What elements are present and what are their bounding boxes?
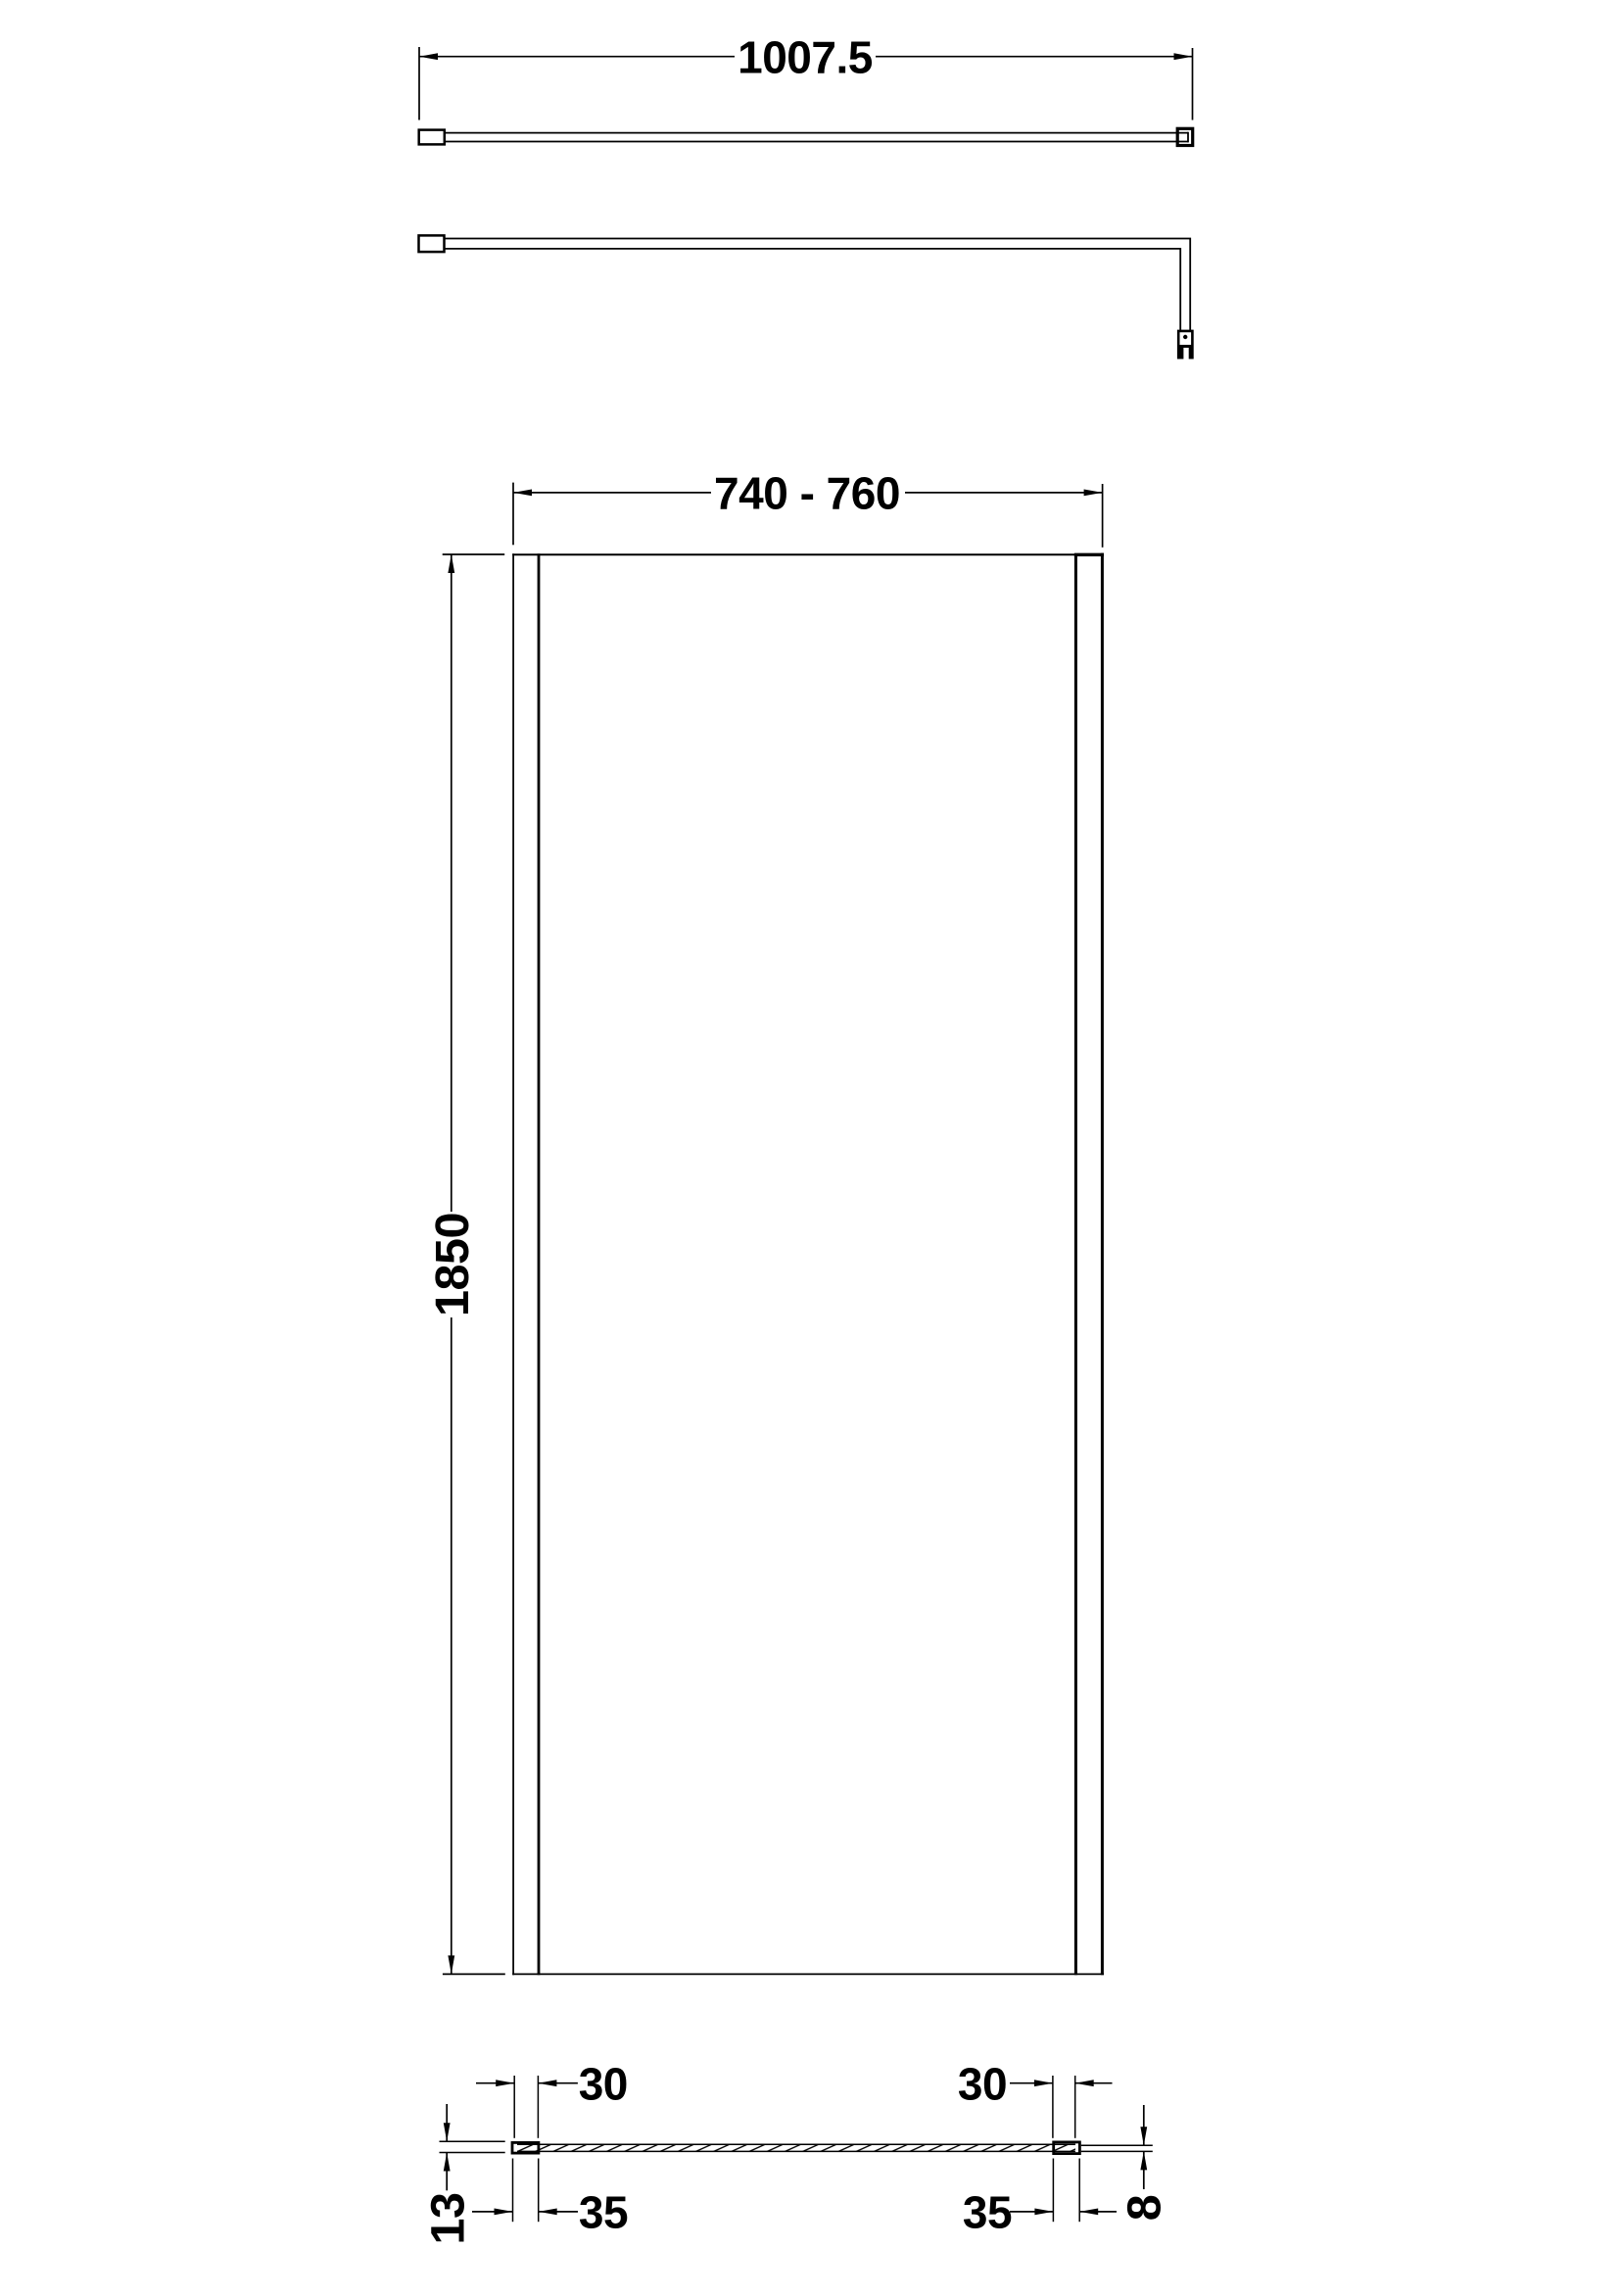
svg-text:35: 35 [963,2187,1012,2238]
svg-text:35: 35 [579,2187,628,2238]
svg-text:30: 30 [579,2059,628,2110]
svg-text:8: 8 [1119,2195,1171,2221]
svg-text:1007.5: 1007.5 [738,31,873,82]
svg-text:13: 13 [422,2193,475,2245]
svg-text:740 - 760: 740 - 760 [714,467,900,518]
svg-text:30: 30 [958,2059,1007,2110]
svg-text:1850: 1850 [426,1213,479,1316]
